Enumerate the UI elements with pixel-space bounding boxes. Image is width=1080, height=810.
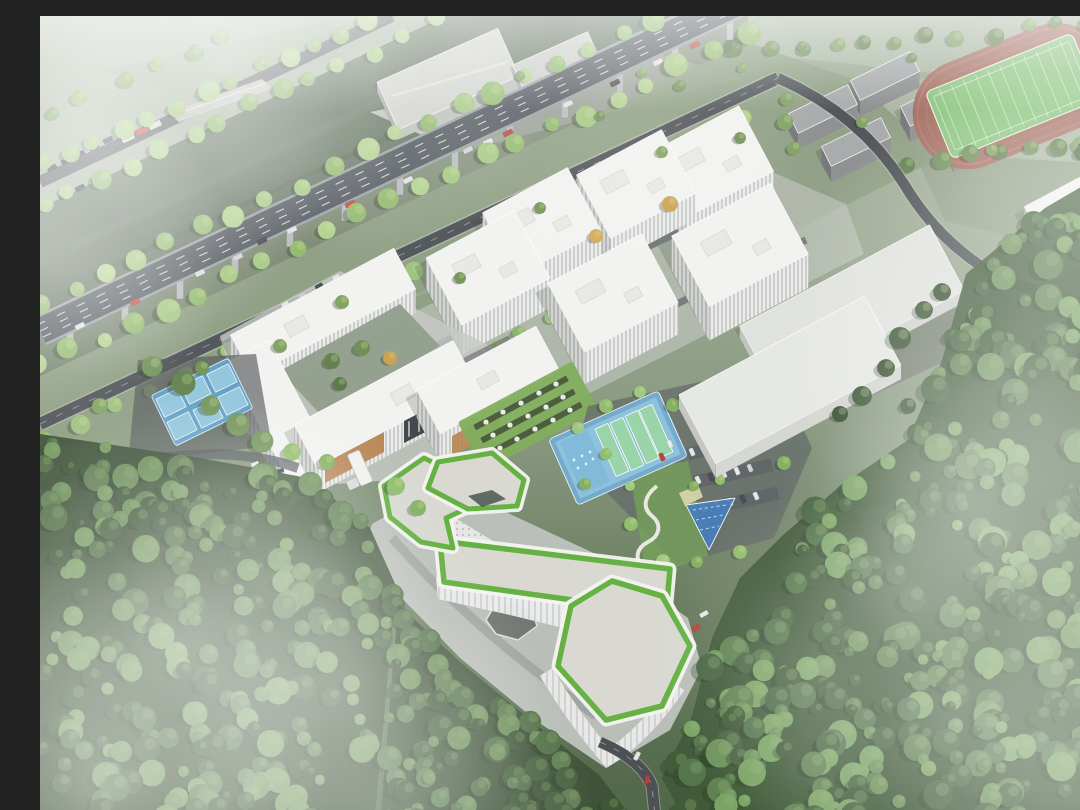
scene-root [40,16,1080,810]
scene-svg [40,16,1080,810]
global-tint [40,16,1080,810]
campus-aerial-rendering: 1080 [40,16,1080,810]
